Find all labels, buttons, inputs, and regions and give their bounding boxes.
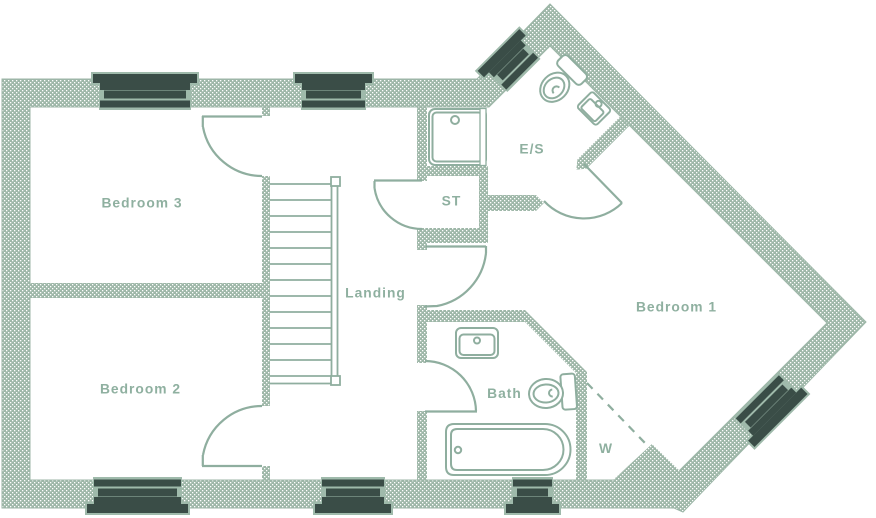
svg-text:ST: ST <box>442 194 462 209</box>
svg-text:Bedroom 2: Bedroom 2 <box>100 382 181 397</box>
svg-text:E/S: E/S <box>519 142 544 157</box>
svg-text:Bedroom 3: Bedroom 3 <box>101 196 182 211</box>
svg-text:W: W <box>599 441 613 456</box>
svg-text:Bedroom 1: Bedroom 1 <box>636 300 717 315</box>
svg-text:Bath: Bath <box>487 386 522 401</box>
svg-text:Landing: Landing <box>345 285 406 300</box>
